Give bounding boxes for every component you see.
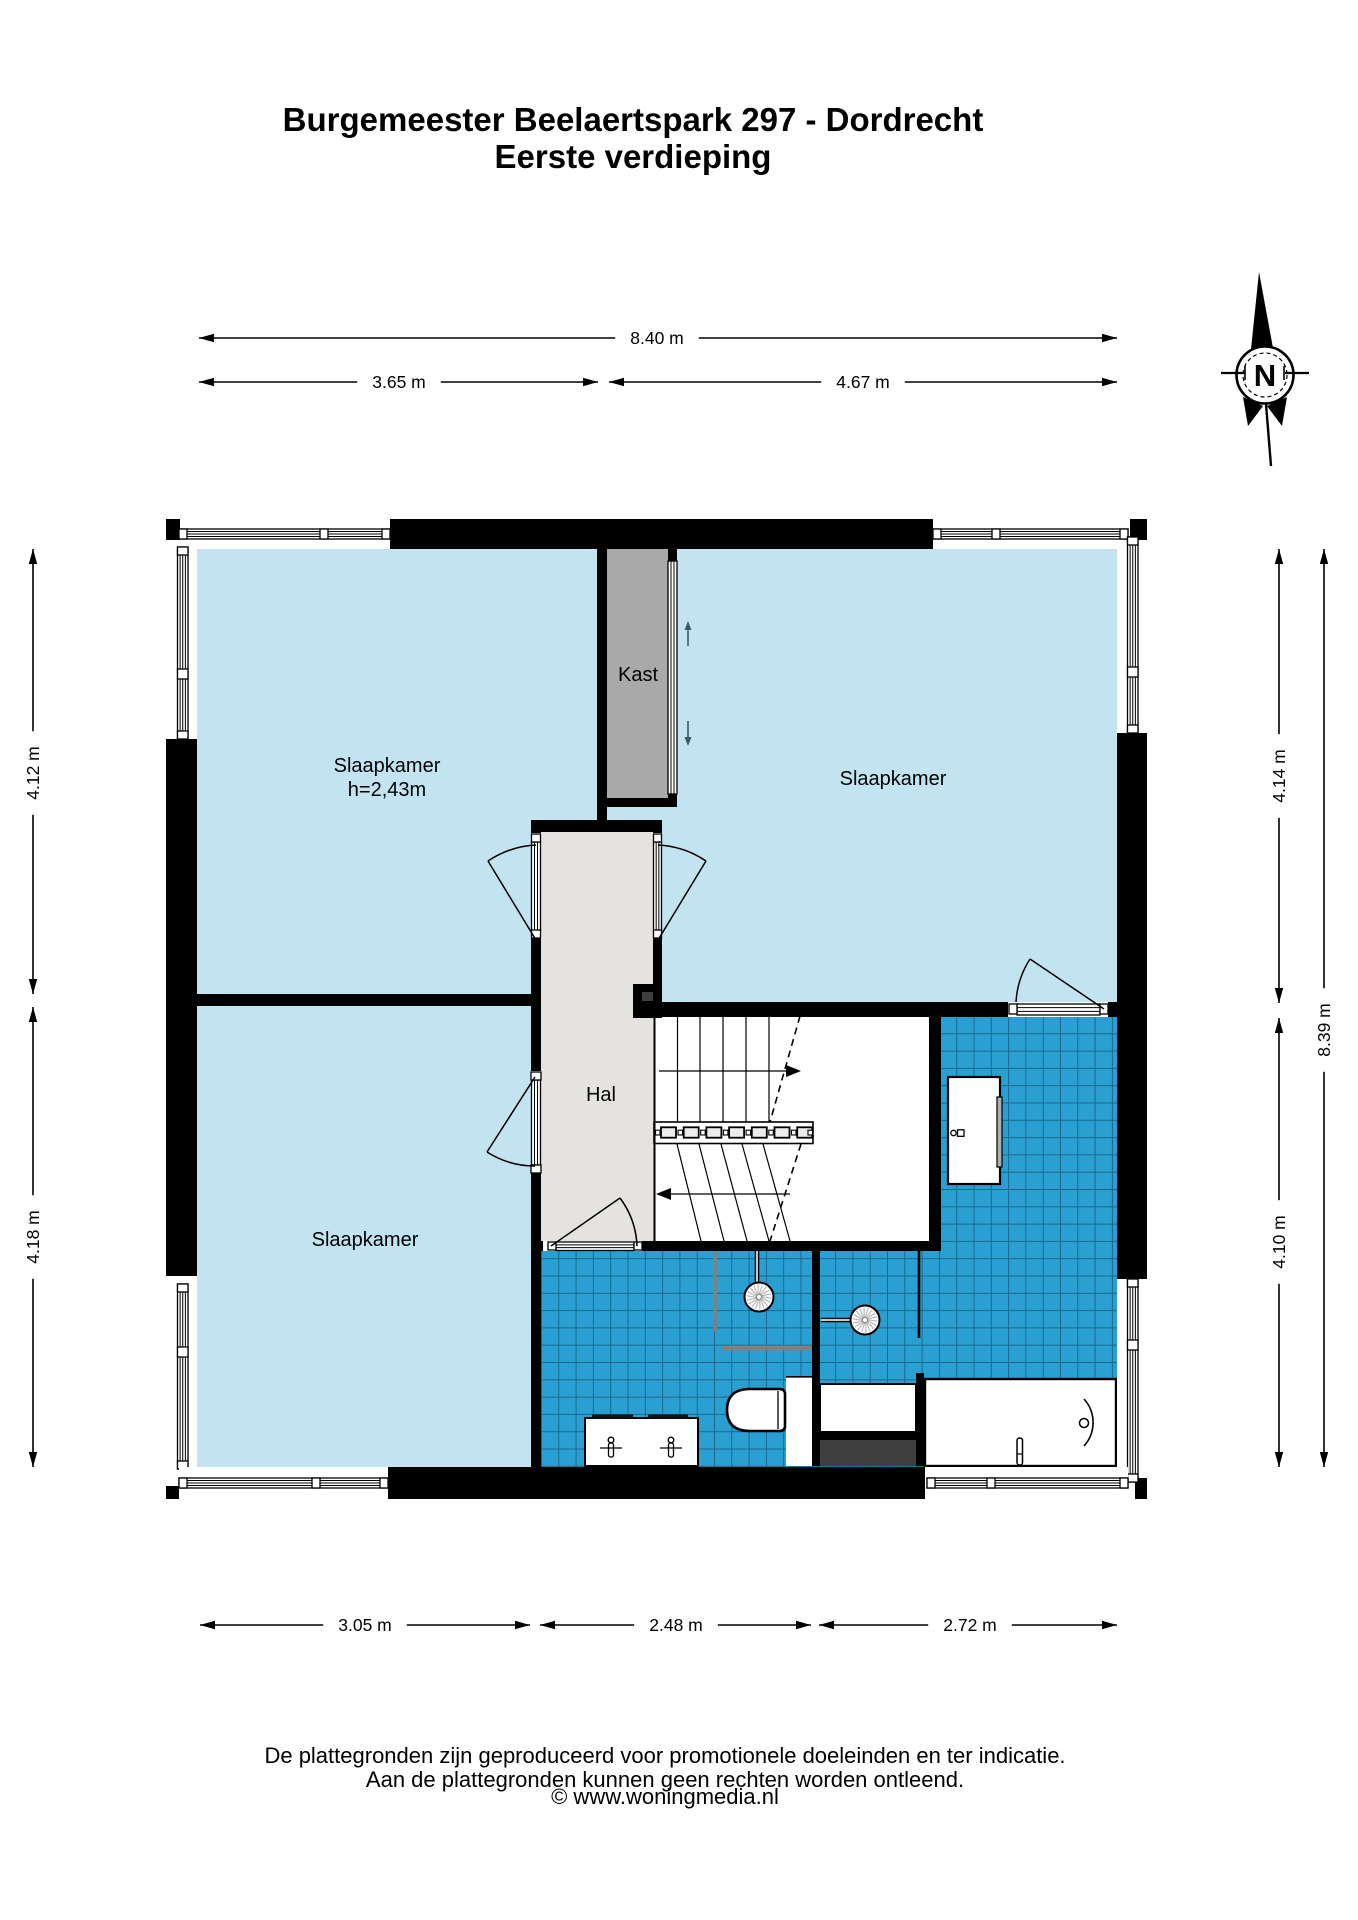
svg-text:Slaapkamer: Slaapkamer [312, 1229, 419, 1251]
svg-text:4.12 m: 4.12 m [23, 746, 43, 800]
svg-text:4.67 m: 4.67 m [836, 372, 890, 392]
svg-text:4.18 m: 4.18 m [23, 1210, 43, 1264]
svg-text:2.72 m: 2.72 m [943, 1615, 997, 1635]
svg-text:Eerste verdieping: Eerste verdieping [495, 138, 772, 175]
svg-text:3.65 m: 3.65 m [372, 372, 426, 392]
svg-text:3.05 m: 3.05 m [338, 1615, 392, 1635]
svg-text:8.40 m: 8.40 m [630, 328, 684, 348]
svg-text:N: N [1254, 358, 1276, 393]
svg-text:Kast: Kast [618, 664, 658, 686]
svg-text:Burgemeester Beelaertspark 297: Burgemeester Beelaertspark 297 - Dordrec… [283, 101, 984, 138]
svg-text:8.39 m: 8.39 m [1314, 1003, 1334, 1057]
svg-text:4.10 m: 4.10 m [1269, 1215, 1289, 1269]
svg-text:Slaapkamer: Slaapkamer [334, 755, 441, 777]
svg-text:Slaapkamer: Slaapkamer [840, 768, 947, 790]
svg-text:© www.woningmedia.nl: © www.woningmedia.nl [551, 1784, 779, 1809]
svg-text:Hal: Hal [586, 1084, 616, 1106]
svg-text:h=2,43m: h=2,43m [348, 779, 426, 801]
svg-text:2.48 m: 2.48 m [649, 1615, 703, 1635]
svg-text:De plattegronden zijn geproduc: De plattegronden zijn geproduceerd voor … [264, 1743, 1065, 1768]
svg-text:4.14 m: 4.14 m [1269, 749, 1289, 803]
